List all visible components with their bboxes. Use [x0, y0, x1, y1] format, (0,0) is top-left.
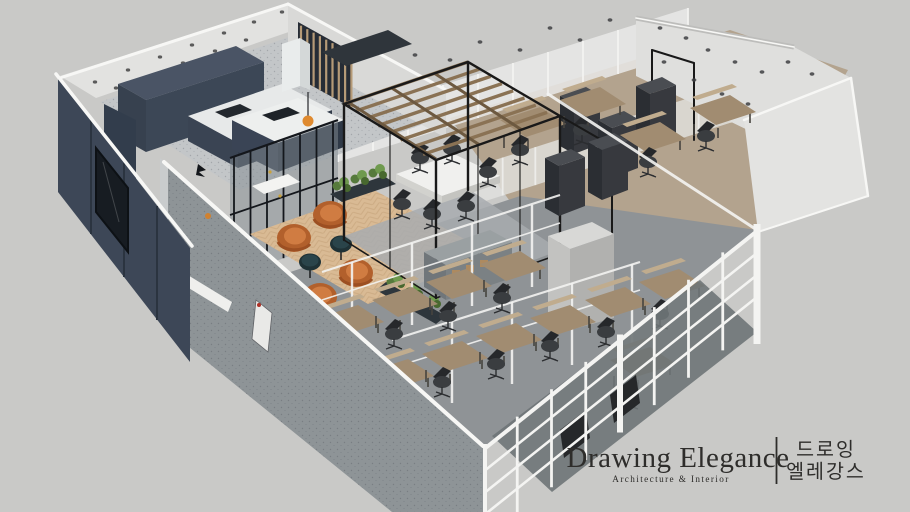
orange-armchair — [277, 224, 311, 252]
ceiling-dot — [222, 31, 226, 34]
isometric-office-scene: Drawing Elegance Architecture & Interior… — [0, 0, 910, 512]
orange-pendant-lamp — [303, 116, 314, 127]
ceiling-dot — [280, 10, 284, 13]
sprinkler-dot — [720, 92, 725, 95]
range-hood-side — [300, 38, 310, 90]
brand-korean-line2: 엘레강스 — [786, 461, 866, 483]
brand-korean-line1: 드로잉 — [796, 439, 856, 461]
orange-wall-lamp — [205, 213, 211, 219]
architectural-render: Drawing Elegance Architecture & Interior… — [0, 0, 910, 512]
sprinkler-dot — [608, 18, 613, 21]
sprinkler-dot — [578, 38, 583, 41]
ceiling-dot — [114, 86, 118, 89]
ceiling-dot — [93, 80, 97, 83]
sprinkler-dot — [413, 53, 418, 56]
sprinkler-dot — [518, 48, 523, 51]
brand-tagline: Architecture & Interior — [612, 474, 729, 484]
sprinkler-dot — [662, 60, 667, 63]
sprinkler-dot — [478, 40, 483, 43]
ceiling-dot — [252, 20, 256, 23]
sprinkler-dot — [810, 72, 815, 75]
orange-armchair — [313, 201, 347, 229]
sprinkler-dot — [786, 60, 791, 63]
sprinkler-dot — [658, 26, 663, 29]
ceiling-dot — [126, 68, 130, 71]
brass-fitting — [268, 170, 271, 173]
brand-name: Drawing Elegance — [567, 442, 790, 474]
sprinkler-dot — [548, 26, 553, 29]
ceiling-dot — [158, 55, 162, 58]
sprinkler-dot — [733, 60, 738, 63]
sprinkler-dot — [706, 48, 711, 51]
poster-logo-dot — [257, 303, 261, 307]
sprinkler-dot — [684, 36, 689, 39]
orange-armchair — [339, 259, 373, 287]
sprinkler-dot — [692, 78, 697, 81]
sprinkler-dot — [746, 102, 751, 105]
range-hood — [282, 38, 300, 92]
sprinkler-dot — [448, 58, 453, 61]
ceiling-dot — [244, 38, 248, 41]
ceiling-dot — [213, 49, 217, 52]
logo: Drawing Elegance Architecture & Interior… — [567, 437, 866, 484]
brass-fitting — [278, 194, 281, 197]
ceiling-dot — [190, 43, 194, 46]
tall-cabinet — [545, 149, 585, 216]
sprinkler-dot — [760, 70, 765, 73]
